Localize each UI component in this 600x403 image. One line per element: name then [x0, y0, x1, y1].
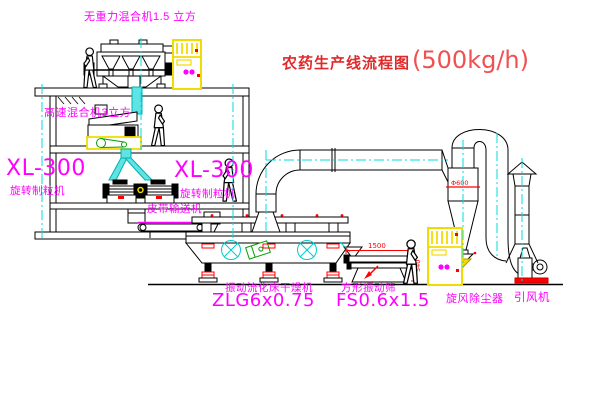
- person-figure: [84, 48, 97, 87]
- label-belt-conveyor: 皮带输送机: [147, 204, 202, 215]
- diagram-title: 农药生产线流程图 (500kg/h): [282, 46, 529, 74]
- floor-hatch: [58, 97, 85, 104]
- cyclone-diameter-dim: Φ600: [451, 179, 469, 187]
- label-granulator-left-model: XL-300: [6, 158, 86, 180]
- process-flow-diagram: Φ600: [0, 0, 600, 403]
- label-sieve-model: FS0.6x1.5: [336, 292, 430, 310]
- label-cyclone: 旋风除尘器: [446, 294, 504, 305]
- label-fan: 引风机: [514, 293, 550, 305]
- gravity-free-mixer-drawing: [84, 40, 177, 88]
- label-granulator-right-model: XL-300: [174, 160, 254, 182]
- control-cabinet-top: [173, 40, 201, 89]
- diagram-title-text: 农药生产线流程图: [282, 52, 410, 73]
- label-granulator-right-name: 旋转制粒机: [180, 189, 235, 200]
- rotary-granulators-drawing: [103, 180, 178, 203]
- y-chute: [109, 149, 152, 180]
- diagram-title-capacity: (500kg/h): [412, 46, 529, 74]
- label-high-speed-mixer: 高速混合机3立方: [44, 108, 131, 119]
- label-dryer-model: ZLG6x0.75: [212, 292, 315, 310]
- label-granulator-left-name: 旋转制粒机: [10, 186, 65, 197]
- label-gravity-free-mixer: 无重力混合机1.5 立方: [84, 12, 196, 23]
- induced-draft-fan-drawing: [515, 248, 548, 283]
- person-figure: [152, 105, 165, 146]
- granulator-down-duct: [128, 209, 145, 223]
- control-cabinet-cyclone: [428, 228, 462, 285]
- frame-markers: [211, 214, 344, 217]
- sieve-length-dim: 1500: [368, 242, 386, 250]
